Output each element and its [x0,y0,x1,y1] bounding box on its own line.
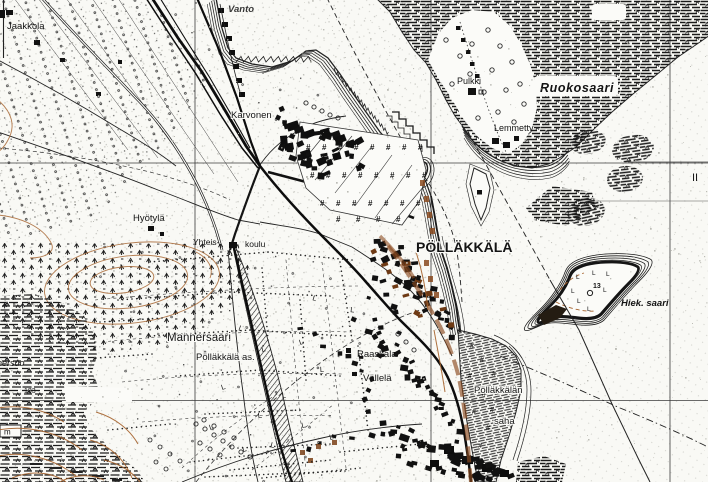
svg-text:Lemmetty: Lemmetty [494,123,534,133]
svg-text:#: # [368,199,373,208]
svg-text:Hiek. saari: Hiek. saari [621,298,669,309]
svg-text:#: # [322,143,327,152]
svg-text:#: # [468,373,472,380]
svg-text:saha: saha [494,416,515,427]
svg-text:#: # [336,215,341,224]
svg-text:#: # [376,215,381,224]
svg-text:#: # [486,425,490,432]
svg-text:#: # [342,171,347,180]
svg-text:L: L [320,365,325,374]
svg-text:#: # [396,215,401,224]
svg-text:#: # [384,199,389,208]
svg-text:#: # [406,171,411,180]
svg-text:Karvonen: Karvonen [231,110,272,121]
svg-text:#: # [418,143,423,152]
svg-text:Vällelä: Vällelä [363,373,392,384]
svg-text:#: # [402,143,407,152]
svg-text:koulu: koulu [245,239,266,249]
svg-text:#: # [374,171,379,180]
svg-text:Pölläkkälä as.: Pölläkkälä as. [196,352,255,363]
svg-text:Pölläkkälän: Pölläkkälän [474,385,523,396]
svg-text:Mannersaari: Mannersaari [167,332,231,344]
svg-text:#: # [480,357,484,364]
svg-text:#: # [490,407,494,414]
svg-text:Pulkki: Pulkki [457,76,481,86]
svg-text:#: # [352,199,357,208]
svg-text:L: L [576,274,580,281]
svg-text:Raaskala: Raaskala [357,349,397,360]
svg-text:#: # [472,409,476,416]
svg-text:#: # [356,215,361,224]
svg-text:#: # [492,371,496,378]
svg-text:L: L [606,271,610,278]
svg-text:nnersuo: nnersuo [0,358,25,368]
svg-text:#: # [478,443,482,450]
svg-text:#: # [422,171,427,180]
svg-text:L: L [592,270,596,277]
svg-text:PÖLLÄKKÄLÄ: PÖLLÄKKÄLÄ [416,239,512,255]
svg-text:#: # [336,199,341,208]
svg-text:Yhteis-: Yhteis- [193,237,220,247]
svg-text:L: L [603,287,607,294]
svg-text:#: # [320,199,325,208]
svg-text:L: L [571,288,575,295]
svg-text:#: # [416,199,421,208]
svg-text:II: II [692,172,698,184]
svg-text:#: # [400,199,405,208]
svg-text:183: 183 [24,388,36,395]
svg-text:L: L [587,306,591,313]
svg-text:#: # [470,343,474,350]
svg-text:Vanto: Vanto [228,4,254,15]
svg-text:#: # [386,143,391,152]
svg-text:Jaakkola: Jaakkola [7,21,45,32]
svg-text:Ruokosaari: Ruokosaari [540,81,614,95]
svg-text:L: L [577,298,581,305]
svg-text:#: # [370,143,375,152]
svg-text:#: # [310,171,315,180]
svg-text:#: # [358,171,363,180]
svg-text:13: 13 [593,283,601,290]
